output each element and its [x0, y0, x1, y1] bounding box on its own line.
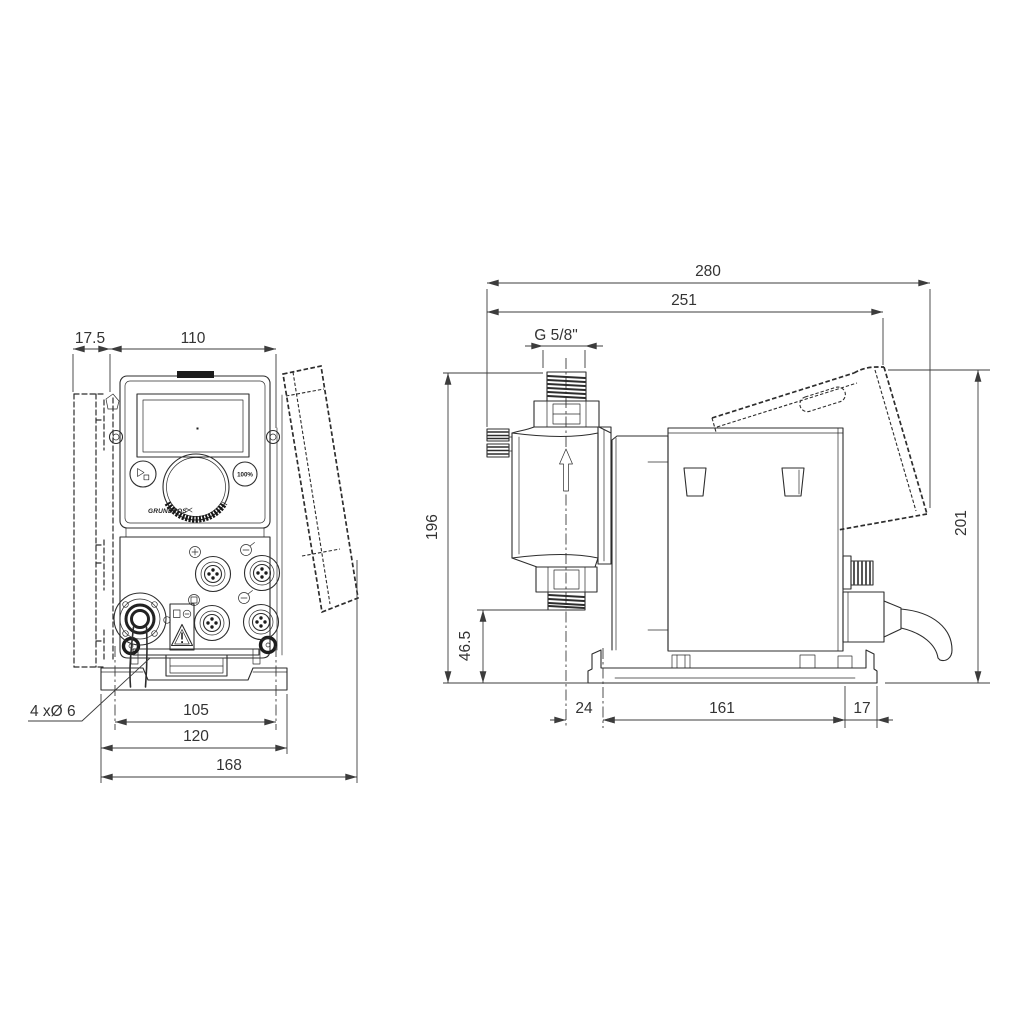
stop-icon: [144, 475, 149, 480]
dim-total-height-label: 201: [953, 510, 970, 536]
side-view: 280 251 G 5/8" 196 46.5 201: [424, 263, 990, 728]
io-port-icon-1: [190, 547, 201, 558]
dosing-pump-dimensional-drawing: 100% GRUNDFOS: [0, 0, 1024, 1024]
start-stop-button: [130, 461, 156, 487]
dim-cube-length-label: 251: [671, 292, 697, 309]
dim-hole-spacing-label: 105: [183, 702, 209, 719]
play-icon: [138, 469, 145, 477]
dim-offset-side-label: 24: [575, 700, 593, 717]
m12-connector-4: [244, 605, 279, 640]
power-cable-flange: [114, 593, 170, 687]
io-port-icon-4: [239, 591, 253, 604]
display: [137, 394, 249, 457]
dim-plate-width-label: 120: [183, 728, 209, 745]
dim-total-length-label: 280: [695, 263, 721, 280]
io-port-icon-2: [241, 543, 255, 556]
holes-callout-label: 4 xØ 6: [30, 703, 76, 720]
side-screw-right: [267, 431, 280, 444]
front-dimensions: 17.5 110 105 120 168 4 xØ 6: [28, 330, 357, 783]
bleed-valve-knob: [487, 429, 512, 457]
mains-connection-cable: [843, 592, 952, 661]
mounting-tab-2: [782, 468, 804, 496]
dim-offset-label: 17.5: [75, 330, 105, 347]
dim-total-width-label: 168: [216, 757, 242, 774]
mounting-plate-front: [101, 668, 287, 690]
m12-connector-1: [196, 557, 231, 592]
dosing-head: [487, 427, 611, 564]
capacity-100-label: 100%: [237, 472, 253, 479]
m12-connectors: [189, 543, 280, 641]
rating-label: [170, 604, 194, 650]
suction-valve: [512, 558, 598, 610]
side-dimensions: 280 251 G 5/8" 196 46.5 201: [424, 263, 990, 728]
motor-housing: [668, 428, 843, 651]
cable-gland: [843, 556, 873, 589]
logo-swoosh-icon: [186, 508, 192, 512]
dim-width-label: 110: [181, 330, 206, 347]
flow-arrow-icon: [560, 449, 573, 491]
m12-connector-3: [195, 606, 230, 641]
wall-plate-hidden: [74, 394, 119, 667]
control-cube-alt-position-front: [277, 366, 358, 655]
dim-base-end-label: 17: [853, 700, 870, 717]
mounting-rail: [131, 649, 260, 676]
thread-size-label: G 5/8": [534, 327, 577, 344]
front-view: 100% GRUNDFOS: [28, 330, 358, 783]
mounting-tab-1: [684, 468, 706, 496]
pump-mechanism-housing: [612, 436, 668, 650]
dim-height-outlet-label: 46.5: [457, 631, 474, 661]
discharge-valve: [512, 372, 611, 433]
power-cable: [130, 627, 134, 687]
connection-housing: [114, 537, 280, 687]
m12-connector-2: [245, 556, 280, 591]
control-cube-alt-position-side: [712, 367, 927, 530]
dim-base-length-label: 161: [709, 700, 735, 717]
dimensional-drawing-page: 100% GRUNDFOS: [0, 0, 1024, 1024]
grundfos-logo: GRUNDFOS: [148, 508, 187, 515]
panel-top-clip: [177, 371, 214, 378]
control-panel: 100% GRUNDFOS: [110, 371, 280, 528]
panel-neck: [126, 528, 264, 537]
capacity-100-button: 100%: [233, 462, 257, 486]
dim-height-conn-label: 196: [424, 514, 441, 540]
warning-triangle-icon: [172, 625, 193, 646]
mounting-plate-side: [588, 650, 877, 683]
